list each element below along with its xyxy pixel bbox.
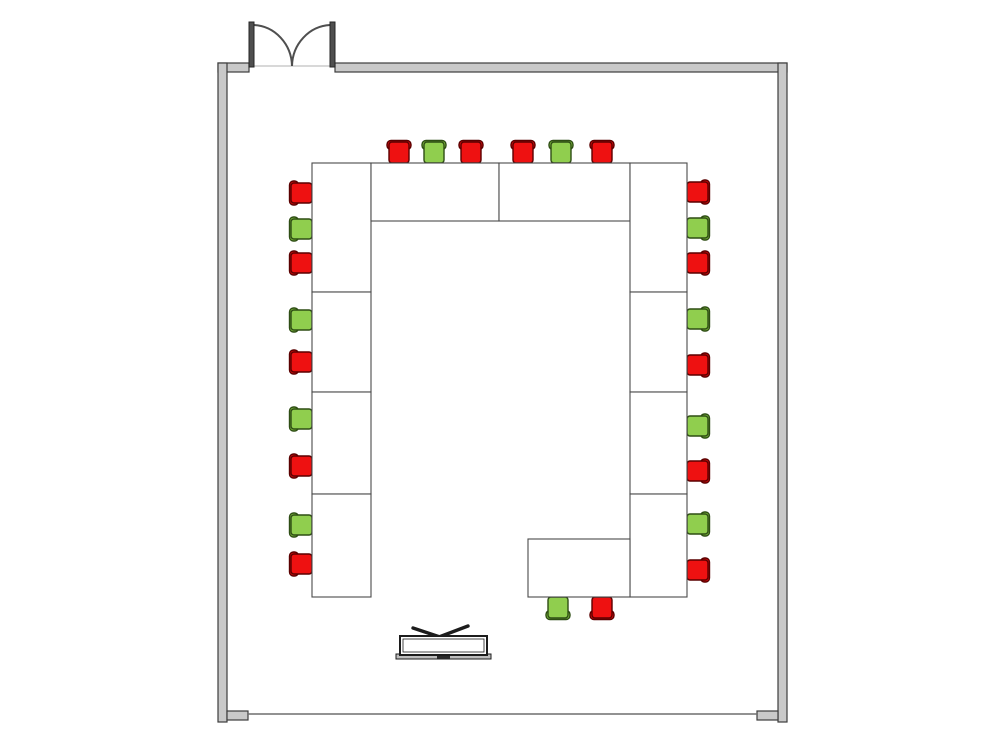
chair-red[interactable] — [290, 350, 313, 374]
chair-seat — [291, 183, 312, 203]
chair-seat — [687, 182, 708, 202]
table-top-b[interactable] — [499, 163, 630, 221]
chair-green[interactable] — [687, 307, 710, 331]
chair-seat — [513, 142, 533, 163]
door-leaf-left — [249, 22, 254, 67]
chair-red[interactable] — [687, 353, 710, 377]
chair-seat — [291, 310, 312, 330]
chair-seat — [291, 554, 312, 574]
chair-seat — [687, 309, 708, 329]
chair-red[interactable] — [387, 141, 411, 164]
chair-seat — [291, 219, 312, 239]
table-left-1[interactable] — [312, 163, 371, 292]
chair-seat — [687, 514, 708, 534]
table-top-a[interactable] — [371, 163, 499, 221]
wall-top — [335, 63, 787, 72]
double-door[interactable] — [249, 22, 335, 67]
chair-green[interactable] — [687, 216, 710, 240]
screen-stand-dash — [437, 656, 450, 659]
chair-red[interactable] — [687, 558, 710, 582]
chair-seat — [424, 142, 444, 163]
chair-green[interactable] — [546, 597, 570, 620]
chair-green[interactable] — [687, 414, 710, 438]
door-swing-arc-left — [254, 25, 292, 66]
chair-seat — [687, 461, 708, 481]
chair-green[interactable] — [290, 308, 313, 332]
chair-seat — [291, 253, 312, 273]
table-right-2[interactable] — [630, 292, 687, 392]
chair-red[interactable] — [459, 141, 483, 164]
chair-green[interactable] — [687, 512, 710, 536]
chair-seat — [687, 560, 708, 580]
chair-green[interactable] — [290, 217, 313, 241]
chair-green[interactable] — [422, 141, 446, 164]
wall-bottom-cap-left — [227, 711, 248, 720]
chair-seat — [687, 218, 708, 238]
chair-seat — [551, 142, 571, 163]
chair-red[interactable] — [290, 552, 313, 576]
chair-red[interactable] — [290, 181, 313, 205]
door-leaf-right — [330, 22, 335, 67]
chair-red[interactable] — [687, 180, 710, 204]
wall-left — [218, 63, 227, 722]
table-bottom-right[interactable] — [528, 539, 630, 597]
chair-seat — [461, 142, 481, 163]
chair-green[interactable] — [290, 407, 313, 431]
chair-green[interactable] — [290, 513, 313, 537]
chair-red[interactable] — [590, 141, 614, 164]
chair-seat — [687, 416, 708, 436]
floor-plan-svg — [0, 0, 1000, 751]
chair-red[interactable] — [290, 251, 313, 275]
chair-red[interactable] — [290, 454, 313, 478]
chair-seat — [592, 597, 612, 618]
chair-seat — [687, 253, 708, 273]
table-right-3[interactable] — [630, 392, 687, 494]
table-right-4[interactable] — [630, 494, 687, 597]
chair-green[interactable] — [549, 141, 573, 164]
chair-seat — [291, 409, 312, 429]
table-left-2[interactable] — [312, 292, 371, 392]
table-right-1[interactable] — [630, 163, 687, 292]
chair-seat — [291, 456, 312, 476]
chair-seat — [291, 352, 312, 372]
chair-red[interactable] — [590, 597, 614, 620]
chair-red[interactable] — [687, 251, 710, 275]
chair-seat — [548, 597, 568, 618]
chair-red[interactable] — [511, 141, 535, 164]
chair-seat — [389, 142, 409, 163]
chair-seat — [291, 515, 312, 535]
wall-bottom-cap-right — [757, 711, 778, 720]
wall-right — [778, 63, 787, 722]
chair-seat — [687, 355, 708, 375]
table-left-4[interactable] — [312, 494, 371, 597]
chair-red[interactable] — [687, 459, 710, 483]
chair-seat — [592, 142, 612, 163]
table-left-3[interactable] — [312, 392, 371, 494]
door-swing-arc-right — [292, 25, 330, 66]
floor-plan-page — [0, 0, 1000, 751]
